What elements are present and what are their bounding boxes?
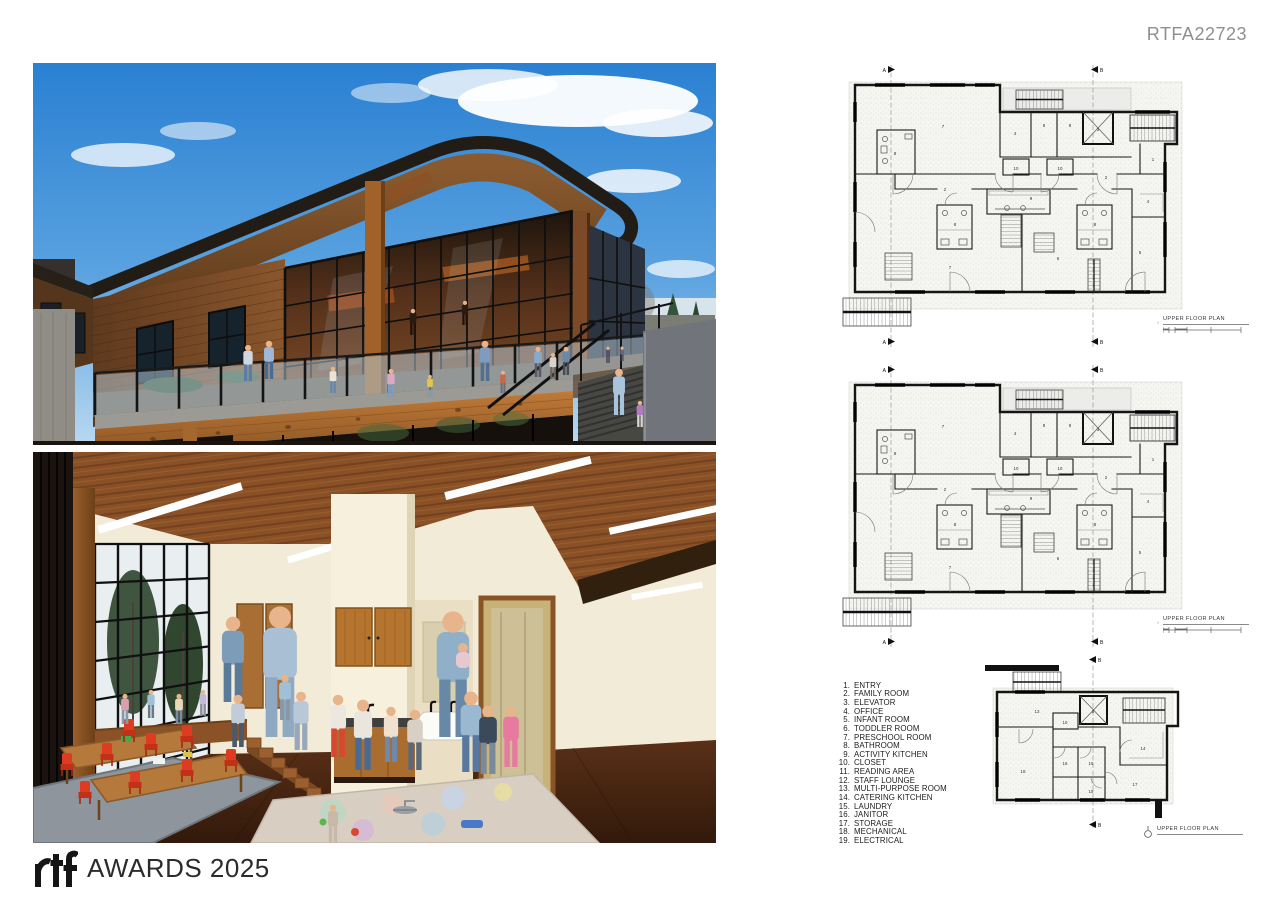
svg-text:A: A xyxy=(883,368,887,374)
svg-text:B: B xyxy=(1100,68,1104,74)
north-arrow-icon xyxy=(1157,616,1159,629)
plan-title: UPPER FLOOR PLAN xyxy=(1163,316,1249,325)
legend-item: 16.JANITOR xyxy=(836,810,1036,819)
svg-text:B: B xyxy=(1100,640,1104,646)
svg-text:A: A xyxy=(883,640,887,646)
legend-item: 14.CATERING KITCHEN xyxy=(836,793,1036,802)
interior-photo-illustration xyxy=(33,452,716,843)
legend-item: 11.READING AREA xyxy=(836,767,1036,776)
plan-caption: UPPER FLOOR PLAN xyxy=(1143,826,1243,839)
exterior-photo-illustration xyxy=(33,63,716,445)
legend-item: 15.LAUNDRY xyxy=(836,802,1036,811)
svg-text:10: 10 xyxy=(1058,166,1063,171)
svg-text:B: B xyxy=(1098,823,1102,829)
plan-title: UPPER FLOOR PLAN xyxy=(1163,616,1249,625)
legend-item: 9.ACTIVITY KITCHEN xyxy=(836,750,1036,759)
legend-item: 6.TODDLER ROOM xyxy=(836,724,1036,733)
awards-title: AWARDS 2025 xyxy=(87,853,270,884)
scale-bar xyxy=(1163,327,1243,334)
svg-text:A: A xyxy=(883,68,887,74)
legend-item: 7.PRESCHOOL ROOM xyxy=(836,733,1036,742)
svg-text:17: 17 xyxy=(1133,782,1138,787)
legend-item: 19.ELECTRICAL xyxy=(836,836,1036,845)
upper-floor-plan-1: A A B B 78488311010229884765 UPPER FLOOR… xyxy=(835,62,1250,352)
legend-item: 3.ELEVATOR xyxy=(836,698,1036,707)
room-legend: 1.ENTRY2.FAMILY ROOM3.ELEVATOR4.OFFICE5.… xyxy=(836,681,1036,845)
floor-plan-drawing: A A B B 78488311010229884765 xyxy=(835,62,1250,352)
exterior-terrace-rendering xyxy=(33,63,716,445)
scale-bar xyxy=(1163,627,1243,634)
svg-text:A: A xyxy=(883,340,887,346)
legend-item: 13.MULTI-PURPOSE ROOM xyxy=(836,785,1036,794)
svg-text:B: B xyxy=(1098,658,1102,664)
rtf-logo-icon xyxy=(30,848,78,888)
legend-item: 1.ENTRY xyxy=(836,681,1036,690)
svg-text:10: 10 xyxy=(1014,466,1019,471)
legend-item: 10.CLOSET xyxy=(836,759,1036,768)
svg-text:19: 19 xyxy=(1089,789,1094,794)
presentation-board: { "header": { "code": "RTFA22723" }, "pl… xyxy=(0,0,1273,900)
legend-item: 17.STORAGE xyxy=(836,819,1036,828)
svg-text:15: 15 xyxy=(1089,761,1094,766)
svg-text:10: 10 xyxy=(1014,166,1019,171)
plan-caption: UPPER FLOOR PLAN xyxy=(1157,616,1249,634)
svg-text:B: B xyxy=(1100,340,1104,346)
svg-text:10: 10 xyxy=(1063,720,1068,725)
legend-item: 18.MECHANICAL xyxy=(836,828,1036,837)
legend-item: 12.STAFF LOUNGE xyxy=(836,776,1036,785)
svg-text:14: 14 xyxy=(1141,746,1146,751)
legend-item: 4.OFFICE xyxy=(836,707,1036,716)
svg-text:16: 16 xyxy=(1063,761,1068,766)
upper-floor-plan-2: A A B B 78488311010229884765 UPPER FLOOR… xyxy=(835,362,1250,652)
legend-item: 5.INFANT ROOM xyxy=(836,716,1036,725)
north-arrow-icon xyxy=(1143,826,1153,839)
north-arrow-icon xyxy=(1157,316,1159,329)
svg-text:B: B xyxy=(1100,368,1104,374)
floor-plan-drawing: A A B B 78488311010229884765 xyxy=(835,362,1250,652)
plan-caption: UPPER FLOOR PLAN xyxy=(1157,316,1249,334)
legend-item: 2.FAMILY ROOM xyxy=(836,690,1036,699)
footer-brand: AWARDS 2025 xyxy=(30,846,270,890)
svg-text:10: 10 xyxy=(1058,466,1063,471)
kitchen-volume xyxy=(331,494,415,814)
entry-code: RTFA22723 xyxy=(1147,24,1247,45)
legend-item: 8.BATHROOM xyxy=(836,741,1036,750)
concrete-pillar xyxy=(643,319,716,445)
interior-classroom-rendering xyxy=(33,452,716,843)
plan-title: UPPER FLOOR PLAN xyxy=(1157,826,1243,835)
